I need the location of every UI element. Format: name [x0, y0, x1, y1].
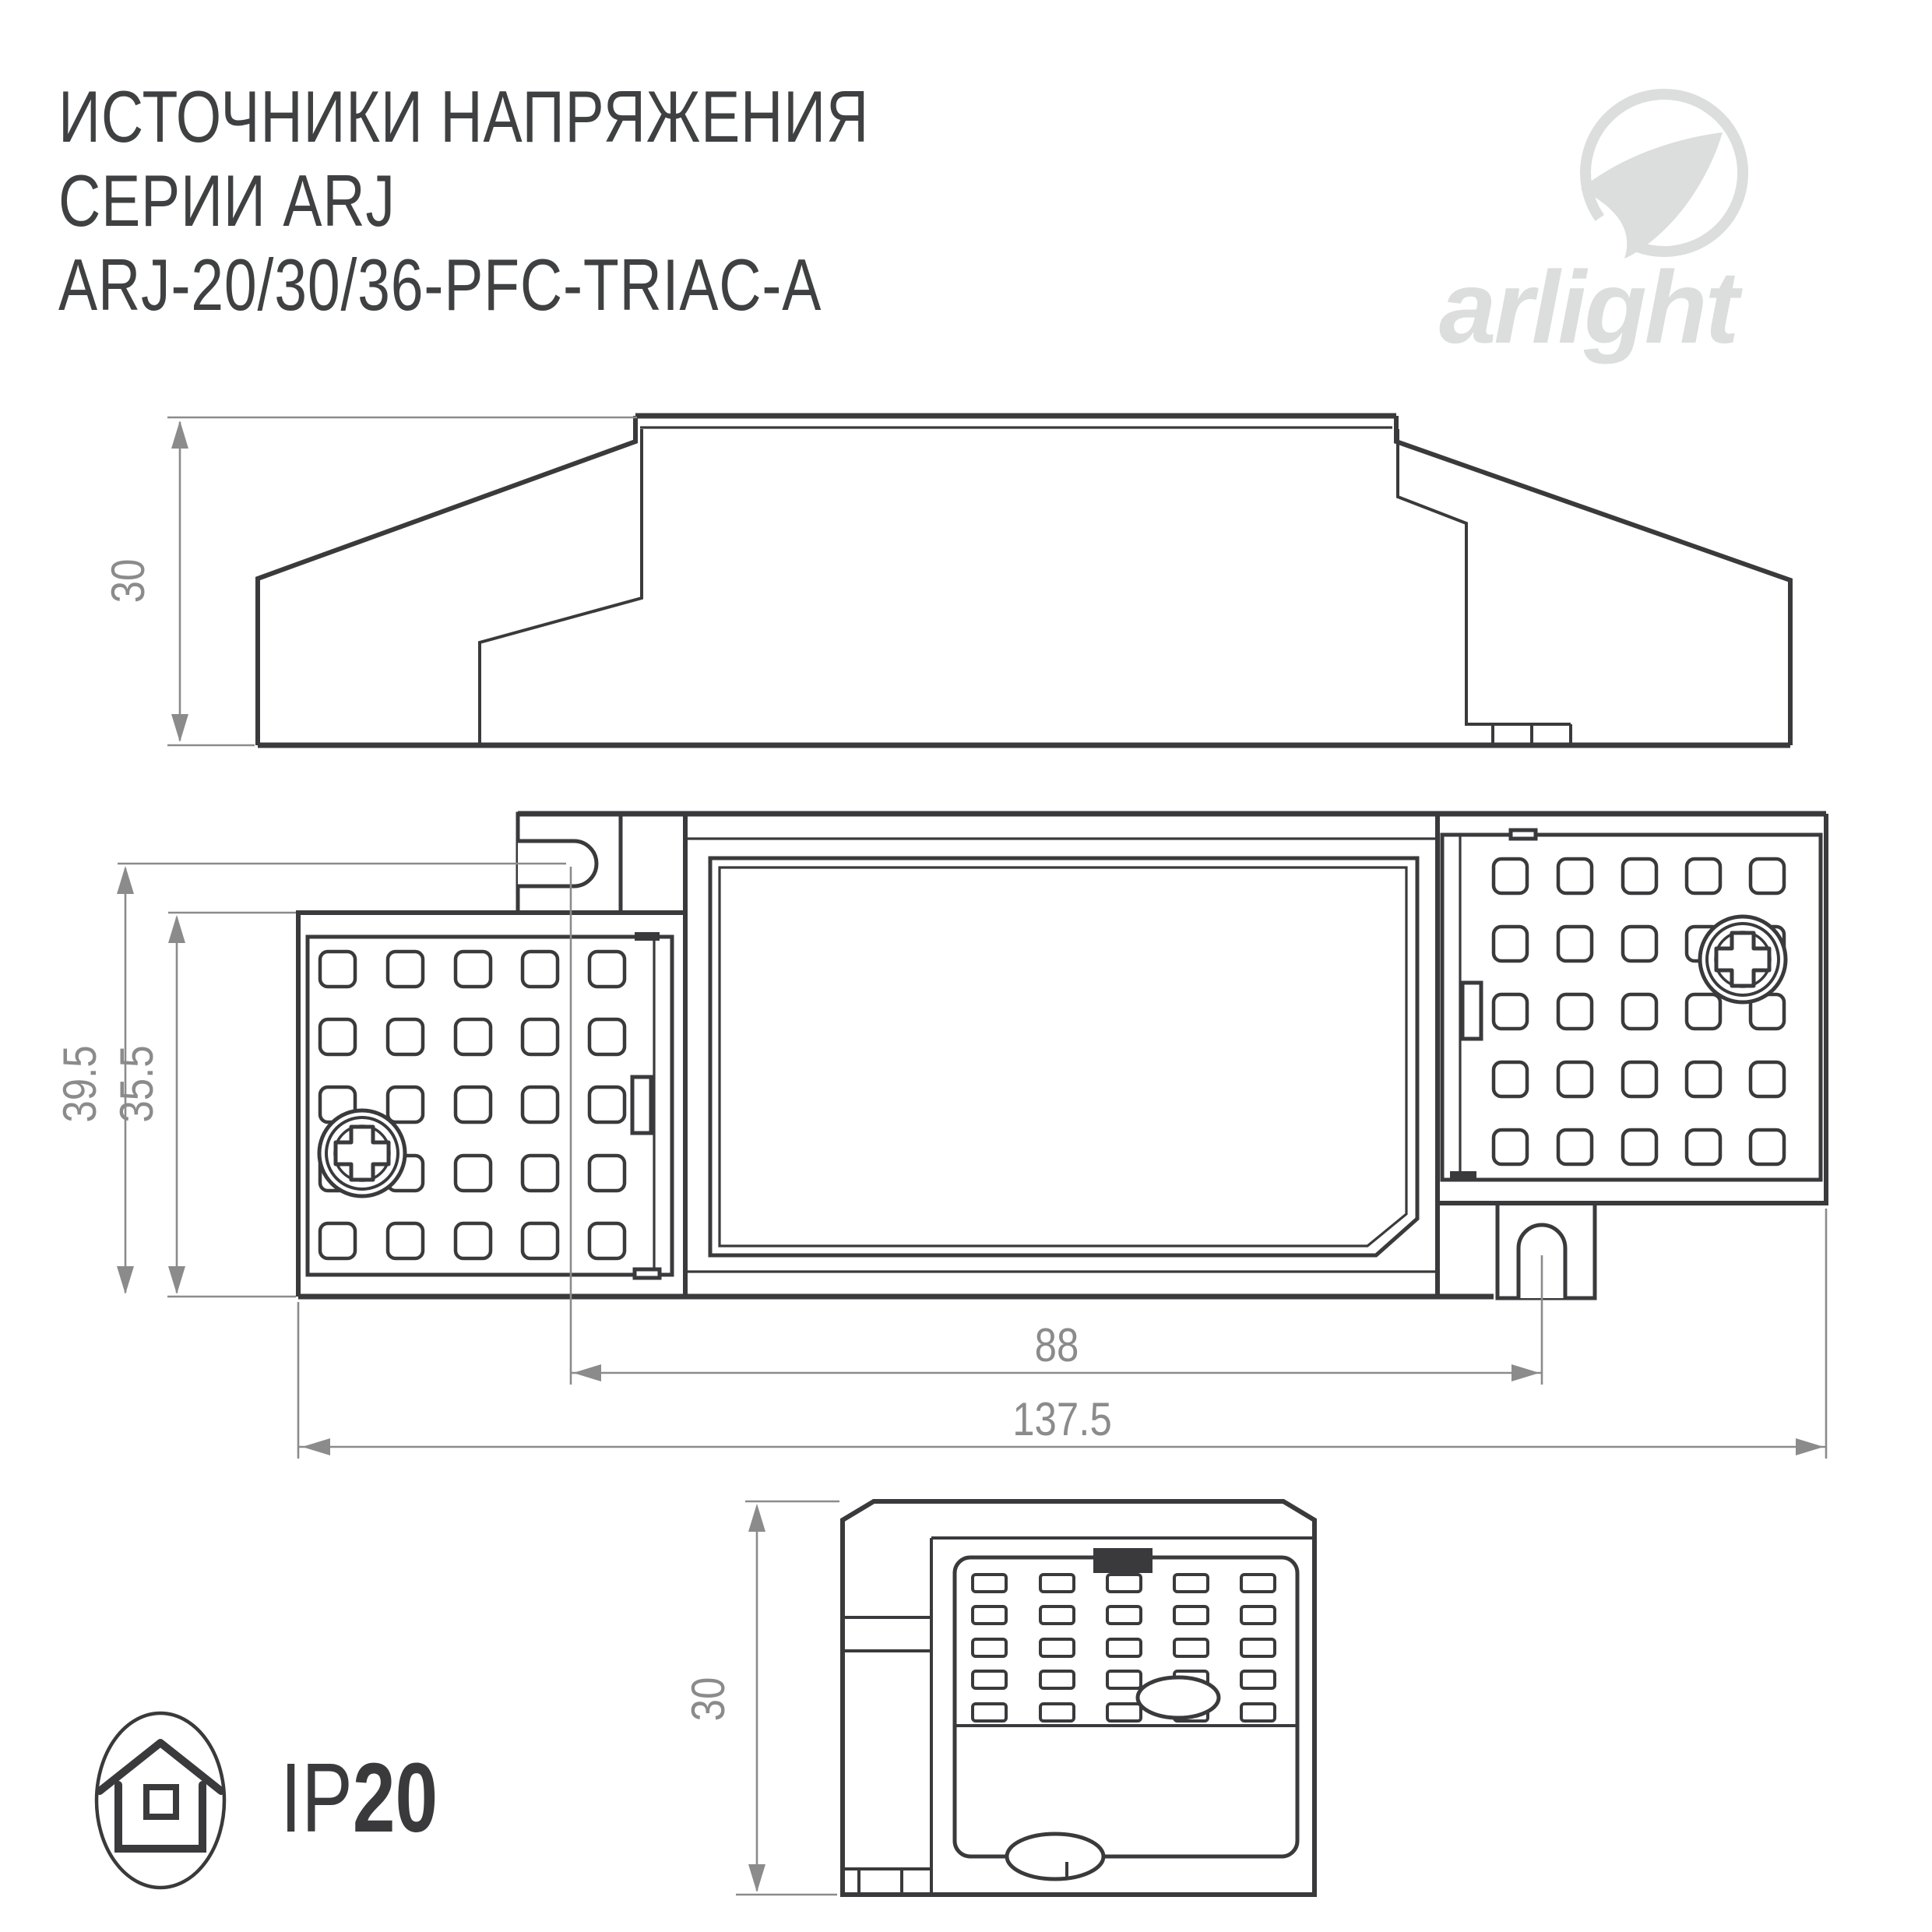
right-panel-top-notch [1511, 830, 1536, 839]
perforation-hole [1494, 1130, 1527, 1164]
perforation-hole [1623, 1062, 1656, 1096]
side-feet [1493, 724, 1571, 745]
right-vent-grid [1494, 859, 1784, 1164]
perforation-hole [1558, 994, 1592, 1029]
ip-prefix: IP [280, 1743, 353, 1853]
right-panel-clip [1462, 983, 1481, 1039]
dimension-arrowhead [171, 714, 188, 742]
vent-slot [1241, 1575, 1275, 1592]
vent-slot [1107, 1671, 1141, 1688]
vent-slot [973, 1704, 1006, 1721]
dim-label-front-height: 30 [682, 1677, 734, 1722]
perforation-hole [456, 1019, 491, 1054]
perforation-hole [1558, 1062, 1592, 1096]
front-connector-mark [1093, 1548, 1153, 1573]
perforation-hole [388, 1087, 423, 1122]
vent-slot [1107, 1575, 1141, 1592]
vent-slot [1241, 1606, 1275, 1624]
perforation-hole [523, 1223, 558, 1258]
dimension-arrowhead [1511, 1364, 1540, 1381]
perforation-hole [589, 1156, 625, 1191]
vent-slot [973, 1606, 1006, 1624]
left-panel-bottom-notch [635, 1269, 660, 1278]
perforation-hole [523, 1156, 558, 1191]
perforation-hole [1687, 1130, 1720, 1164]
dim-front30-extensions [736, 1501, 839, 1895]
vent-slot [1040, 1639, 1074, 1656]
perforation-hole [523, 952, 558, 987]
perforation-hole [589, 952, 625, 987]
side-view-drawing [258, 416, 1790, 745]
side-left-profile [258, 416, 635, 745]
page-title-line1: ИСТОЧНИКИ НАПРЯЖЕНИЯ [58, 76, 869, 158]
right-block-outline [1438, 814, 1826, 1203]
front-view-drawing [843, 1501, 1314, 1895]
perforation-hole [1623, 859, 1656, 893]
perforation-hole [320, 1019, 355, 1054]
perforation-hole [456, 952, 491, 987]
datasheet-page: ИСТОЧНИКИ НАПРЯЖЕНИЯ СЕРИИ ARJ ARJ-20/30… [0, 0, 1932, 1932]
perforation-hole [1558, 859, 1592, 893]
perforation-hole [1687, 1062, 1720, 1096]
dimension-arrowhead [748, 1864, 765, 1892]
perforation-hole [1494, 927, 1527, 961]
dimension-arrowhead [748, 1504, 765, 1532]
right-block-vent-panel [1442, 835, 1821, 1180]
ip-rating-label: IP20 [280, 1743, 438, 1853]
right-panel-bottom-tab [1450, 1171, 1476, 1180]
left-panel-top-tab [635, 932, 660, 941]
technical-drawing-canvas: ИСТОЧНИКИ НАПРЯЖЕНИЯ СЕРИИ ARJ ARJ-20/30… [0, 0, 1932, 1932]
perforation-hole [1687, 994, 1720, 1029]
perforation-hole [1751, 859, 1784, 893]
vent-slot [1040, 1671, 1074, 1688]
perforation-hole [388, 1223, 423, 1258]
plan-view-drawing [298, 814, 1826, 1298]
perforation-hole [1623, 1130, 1656, 1164]
perforation-hole [1558, 1130, 1592, 1164]
title-block: ИСТОЧНИКИ НАПРЯЖЕНИЯ СЕРИИ ARJ ARJ-20/30… [58, 76, 869, 326]
perforation-hole [1751, 1130, 1784, 1164]
front-vent-slots [973, 1575, 1275, 1721]
dimension-arrowhead [168, 1266, 185, 1294]
perforation-hole [388, 1019, 423, 1054]
perforation-hole [1623, 927, 1656, 961]
dimension-arrowhead [171, 421, 188, 449]
vent-slot [1241, 1671, 1275, 1688]
dim-88-extensions [571, 867, 1542, 1385]
dim-label-side-height: 30 [102, 559, 154, 604]
perforation-hole [1687, 859, 1720, 893]
perforation-hole [1558, 927, 1592, 961]
vent-slot [1241, 1639, 1275, 1656]
vent-slot [973, 1639, 1006, 1656]
ip-value: 20 [353, 1743, 438, 1853]
ip-rating-badge: IP20 [97, 1713, 438, 1888]
perforation-hole [388, 952, 423, 987]
vent-slot [1174, 1575, 1208, 1592]
front-feet [843, 1869, 931, 1895]
perforation-hole [456, 1156, 491, 1191]
arlight-wordmark: arlight [1439, 250, 1743, 364]
perforation-hole [1623, 994, 1656, 1029]
dim-label-overall-length: 137.5 [1012, 1393, 1112, 1445]
page-title-line2: СЕРИИ ARJ [58, 160, 396, 242]
vent-slot [1107, 1704, 1141, 1721]
vent-slot [973, 1575, 1006, 1592]
perforation-hole [456, 1087, 491, 1122]
side-right-profile [1396, 416, 1790, 745]
house-icon-window [146, 1787, 176, 1817]
vent-slot [1174, 1606, 1208, 1624]
left-panel-clip [632, 1077, 651, 1133]
vent-slot [1107, 1606, 1141, 1624]
side-left-inner-fold [480, 429, 642, 744]
dim-label-hole-spacing: 88 [1035, 1319, 1079, 1371]
dimension-arrowhead [117, 866, 134, 894]
dimension-arrowhead [1796, 1438, 1824, 1455]
dimension-arrowhead [573, 1364, 601, 1381]
perforation-hole [1751, 1062, 1784, 1096]
plan-lid-outer [710, 858, 1417, 1255]
perforation-hole [523, 1087, 558, 1122]
plan-lid-inner [720, 867, 1406, 1246]
perforation-hole [589, 1223, 625, 1258]
perforation-hole [1494, 859, 1527, 893]
page-title-line3: ARJ-20/30/36-PFC-TRIAC-A [58, 245, 822, 326]
perforation-hole [456, 1223, 491, 1258]
perforation-hole [589, 1087, 625, 1122]
perforation-hole [320, 952, 355, 987]
front-oval-button-small [1138, 1677, 1219, 1718]
perforation-hole [1494, 994, 1527, 1029]
perforation-hole [1494, 1062, 1527, 1096]
dimension-arrowhead [117, 1266, 134, 1294]
vent-slot [1241, 1704, 1275, 1721]
vent-slot [1040, 1704, 1074, 1721]
perforation-hole [320, 1223, 355, 1258]
vent-slot [1040, 1606, 1074, 1624]
front-oval-button-large [1007, 1834, 1103, 1879]
left-vent-grid [320, 952, 625, 1258]
front-flange-lines [843, 1617, 931, 1651]
arlight-logo: arlight [1439, 94, 1743, 364]
dim-label-body-height: 39.5 [54, 1045, 106, 1122]
perforation-hole [589, 1019, 625, 1054]
vent-slot [1107, 1639, 1141, 1656]
vent-slot [1174, 1639, 1208, 1656]
dimension-arrowhead [302, 1438, 330, 1455]
dim-label-block-height: 35.5 [111, 1045, 163, 1122]
dimension-arrowhead [168, 915, 185, 943]
vent-slot [973, 1671, 1006, 1688]
dim-395-extensions [118, 864, 566, 1297]
perforation-hole [523, 1019, 558, 1054]
vent-slot [1040, 1575, 1074, 1592]
